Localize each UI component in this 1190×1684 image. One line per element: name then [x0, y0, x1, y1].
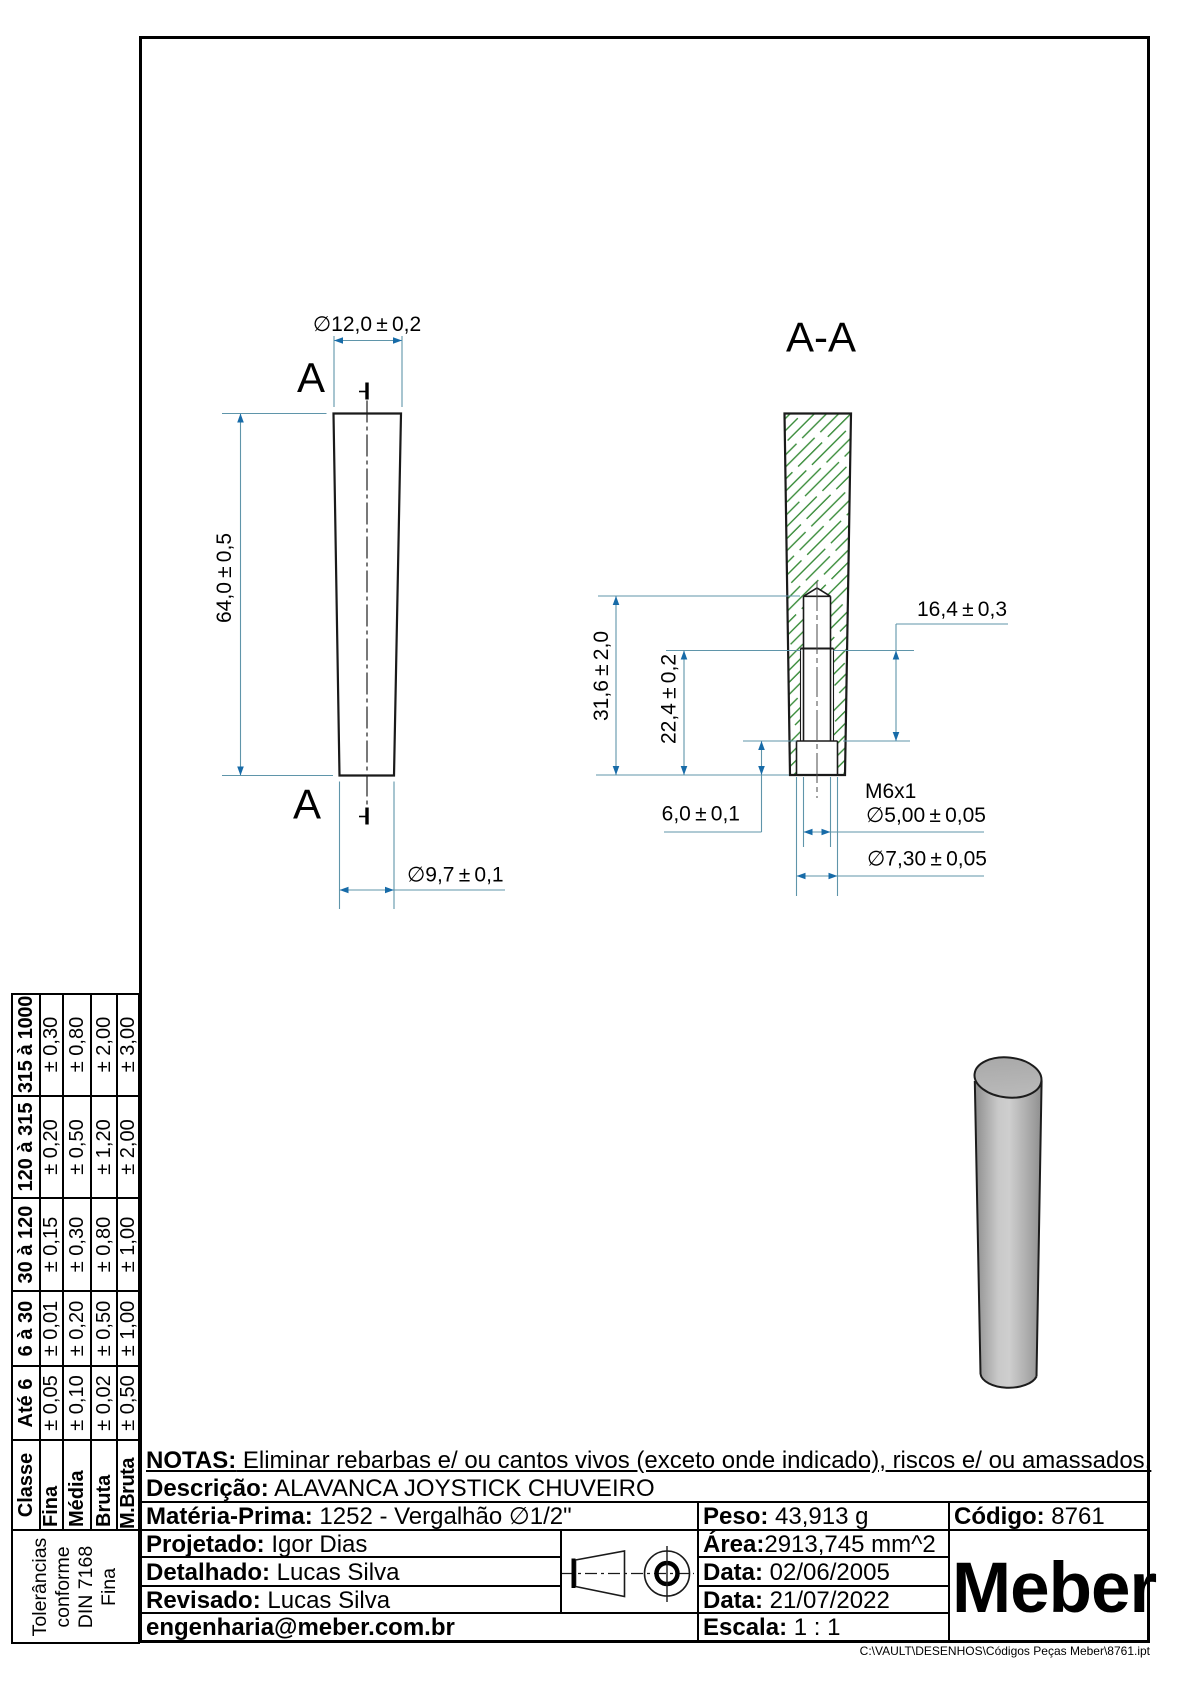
svg-text:64,0 ± 0,5: 64,0 ± 0,5	[213, 533, 236, 623]
svg-text:A: A	[297, 354, 325, 401]
svg-text:∅12,0 ± 0,2: ∅12,0 ± 0,2	[313, 313, 421, 336]
svg-text:∅5,00 ± 0,05: ∅5,00 ± 0,05	[866, 804, 986, 827]
svg-text:6,0 ± 0,1: 6,0 ± 0,1	[662, 803, 740, 826]
svg-text:∅9,7 ± 0,1: ∅9,7 ± 0,1	[407, 864, 504, 887]
svg-text:31,6 ± 2,0: 31,6 ± 2,0	[590, 631, 613, 721]
svg-text:A-A: A-A	[786, 314, 856, 361]
svg-text:22,4 ± 0,2: 22,4 ± 0,2	[658, 654, 681, 744]
svg-text:16,4 ± 0,3: 16,4 ± 0,3	[917, 598, 1007, 621]
svg-text:A: A	[293, 781, 321, 828]
svg-text:∅7,30 ± 0,05: ∅7,30 ± 0,05	[867, 848, 987, 871]
svg-text:M6x1: M6x1	[865, 780, 916, 803]
